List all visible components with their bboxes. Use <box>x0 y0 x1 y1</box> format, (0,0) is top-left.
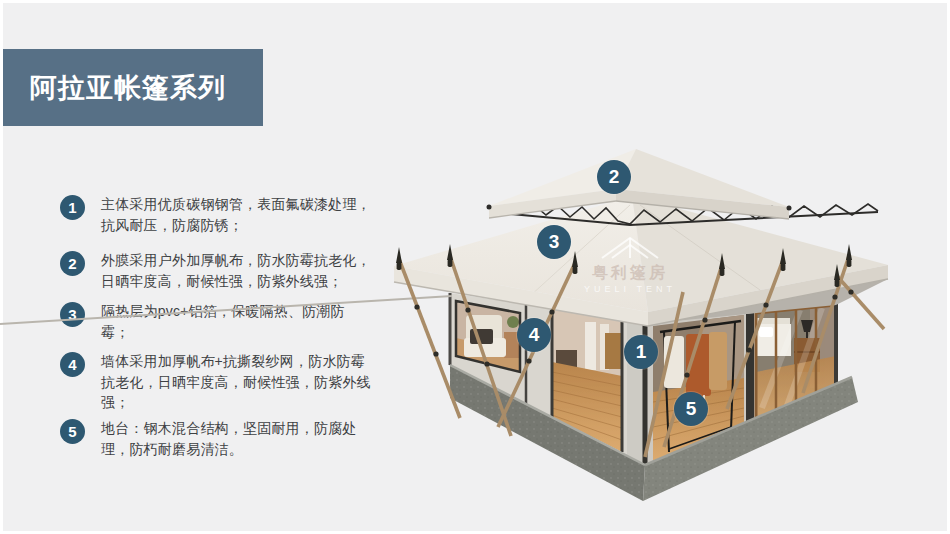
slide-page: 阿拉亚帐篷系列 1 主体采用优质碳钢钢管，表面氟碳漆处理，抗风耐压，防腐防锈； … <box>0 0 950 534</box>
svg-text:粤利篷房: 粤利篷房 <box>592 263 668 281</box>
image-marker-4: 4 <box>517 318 551 352</box>
image-marker-2: 2 <box>597 160 631 194</box>
image-marker-3: 3 <box>537 225 571 259</box>
image-marker-1: 1 <box>624 335 658 369</box>
tent-illustration: 粤利篷房 YUELI TENT <box>0 0 950 534</box>
svg-text:YUELI TENT: YUELI TENT <box>584 284 676 294</box>
image-marker-5: 5 <box>674 392 708 426</box>
